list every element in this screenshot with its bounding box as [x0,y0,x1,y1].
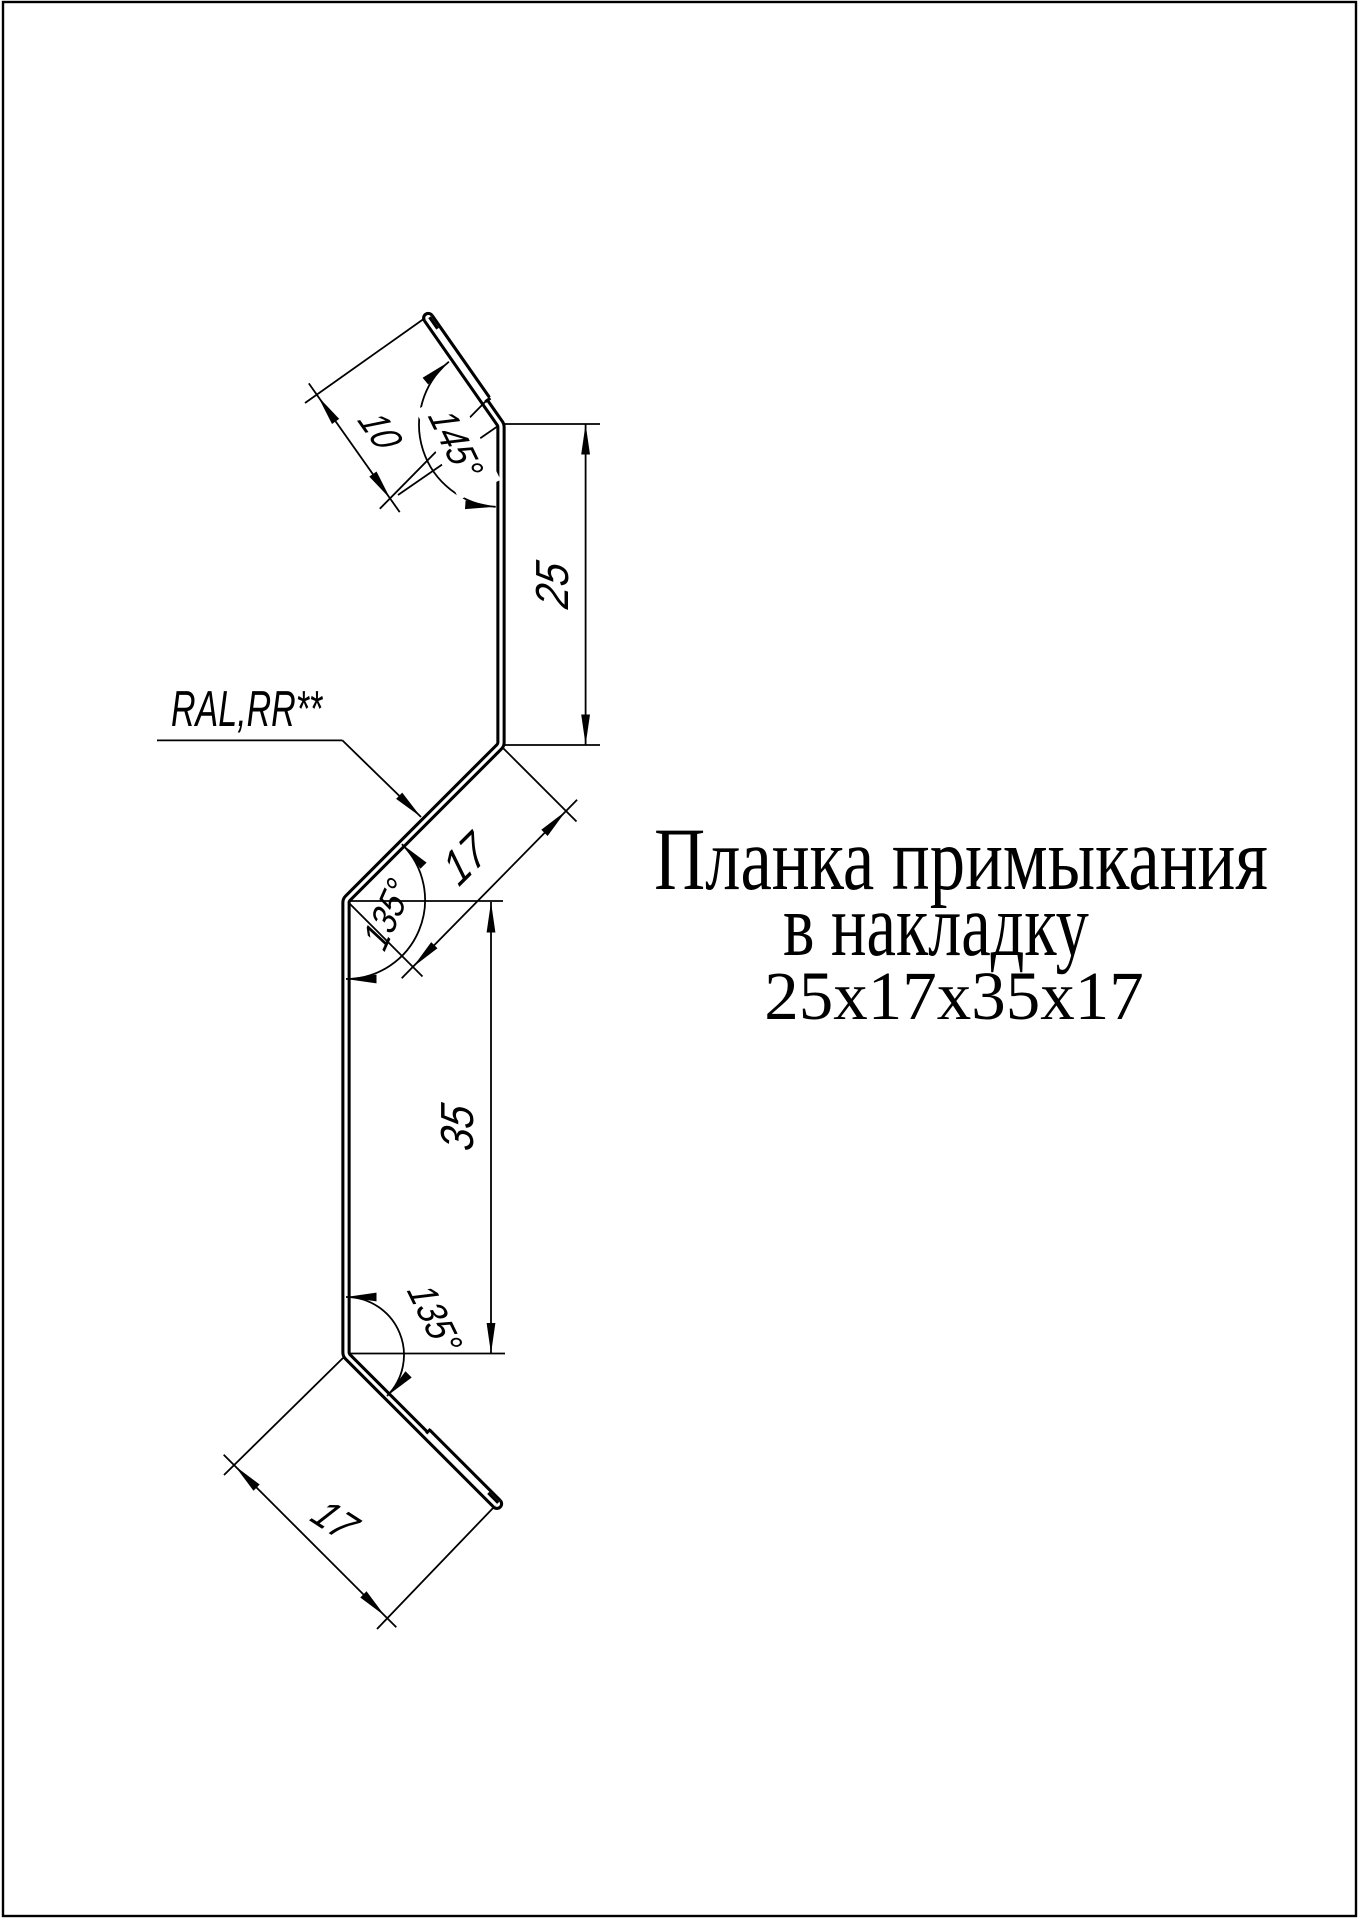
svg-text:RAL,RR**: RAL,RR** [171,681,324,738]
svg-text:135°: 135° [397,1280,471,1356]
svg-text:35: 35 [433,1100,484,1154]
svg-text:10: 10 [348,408,413,455]
svg-text:17: 17 [302,1491,370,1549]
svg-text:25: 25 [527,557,578,612]
